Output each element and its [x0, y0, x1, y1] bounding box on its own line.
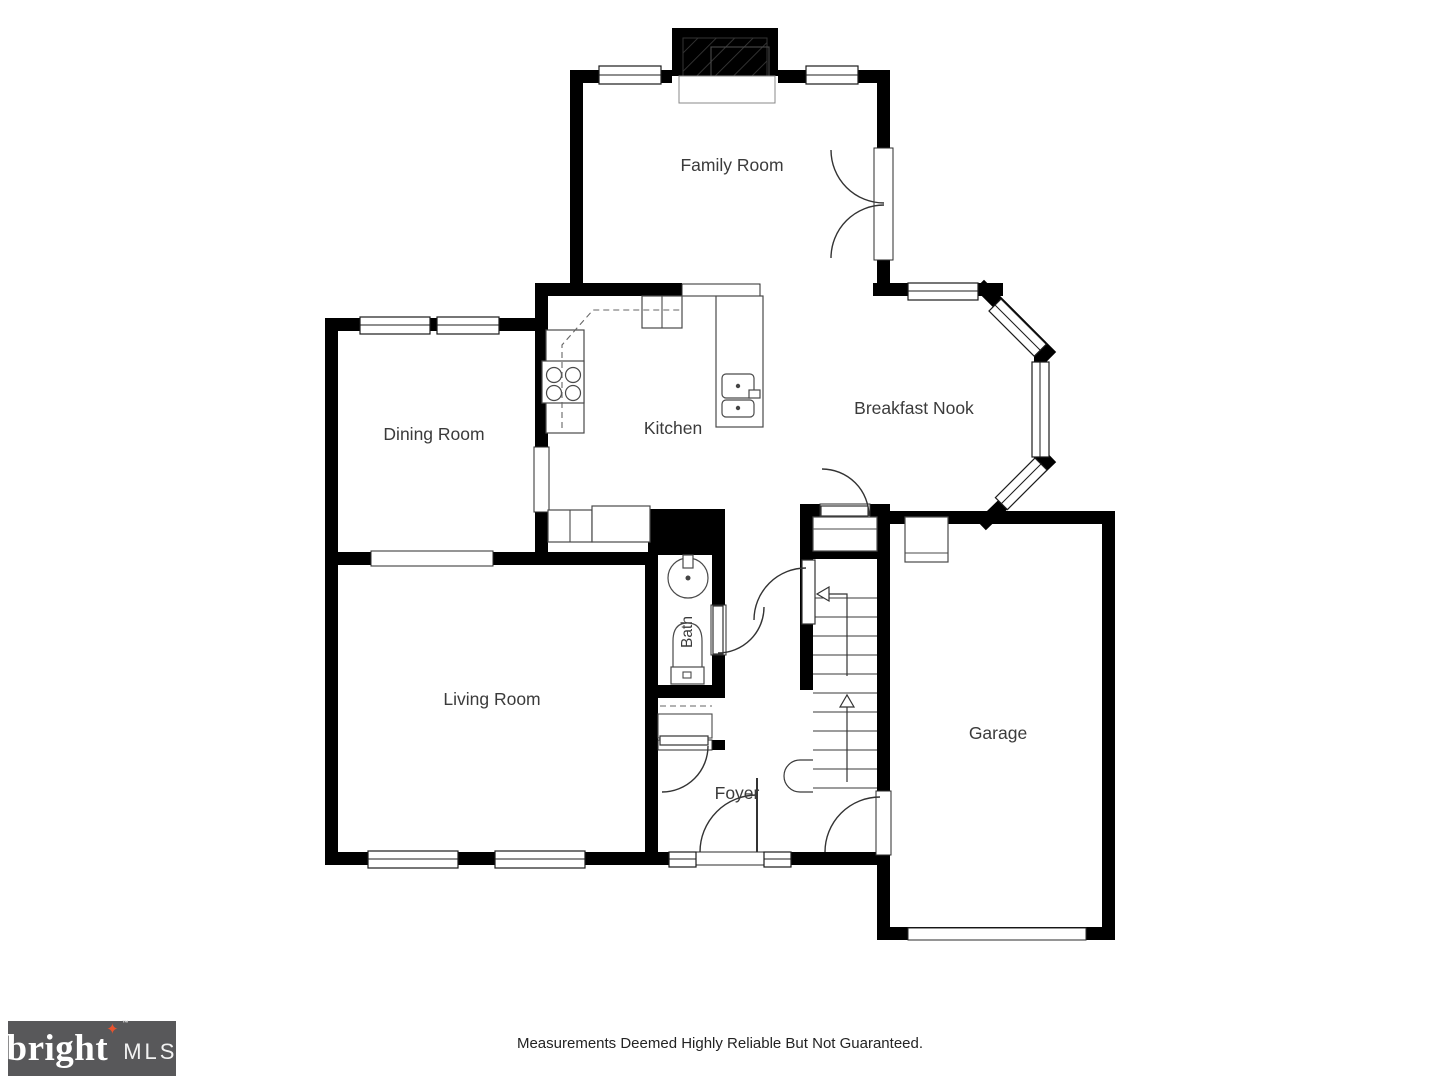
- cabinet-top: [642, 296, 682, 328]
- window: [360, 317, 430, 334]
- stairs: [784, 587, 877, 792]
- trademark-symbol: ™: [122, 1020, 130, 1027]
- stove-icon: [542, 361, 584, 403]
- pantry-door: [821, 469, 869, 516]
- disclaimer-text: Measurements Deemed Highly Reliable But …: [0, 1035, 1440, 1052]
- floor-plan: Family Room Dining Room Kitchen Breakfas…: [0, 0, 1440, 1080]
- window: [599, 66, 661, 84]
- opening-dining-living: [371, 551, 493, 566]
- stair-direction-arrows: [817, 587, 854, 782]
- closet-door: [660, 736, 708, 792]
- garage-utility: [905, 517, 948, 562]
- window: [437, 317, 499, 334]
- bay-window-lower: [995, 458, 1047, 510]
- hearth: [679, 76, 775, 103]
- room-label-family-room: Family Room: [680, 155, 783, 175]
- room-label-garage: Garage: [969, 723, 1027, 743]
- wall-openings: [371, 148, 1086, 940]
- window: [908, 283, 978, 300]
- sink-icon: [722, 374, 760, 417]
- room-label-foyer: Foyer: [715, 783, 760, 803]
- stair-newel: [784, 760, 813, 792]
- window: [368, 851, 458, 868]
- room-label-breakfast-nook: Breakfast Nook: [854, 398, 974, 418]
- front-door-opening: [695, 852, 765, 865]
- window: [669, 852, 696, 867]
- window: [495, 851, 585, 868]
- opening-dining-kitchen: [534, 447, 549, 512]
- window: [806, 66, 858, 84]
- bay-window-vertical: [1032, 362, 1049, 457]
- water-heater: [905, 517, 948, 562]
- room-label-living-room: Living Room: [443, 689, 540, 709]
- dishwasher: [592, 506, 650, 542]
- bath-door: [713, 606, 764, 654]
- french-door-opening: [874, 148, 893, 260]
- garage-entry-opening: [876, 791, 891, 855]
- fireplace: [679, 38, 775, 103]
- kitchen-passthrough: [682, 284, 760, 296]
- counter-bottom: [548, 506, 650, 542]
- room-label-dining-room: Dining Room: [383, 424, 484, 444]
- foyer-closet: [658, 706, 712, 738]
- closet-shelf: [658, 714, 712, 738]
- bay-window-upper: [989, 299, 1046, 356]
- pantry: [813, 517, 877, 551]
- room-label-kitchen: Kitchen: [644, 418, 702, 438]
- garage-entry-door: [825, 797, 880, 852]
- bath-sink-icon: [668, 555, 708, 598]
- garage-vehicle-door: [908, 928, 1086, 940]
- window: [764, 852, 791, 867]
- room-label-bath: Bath: [679, 616, 696, 648]
